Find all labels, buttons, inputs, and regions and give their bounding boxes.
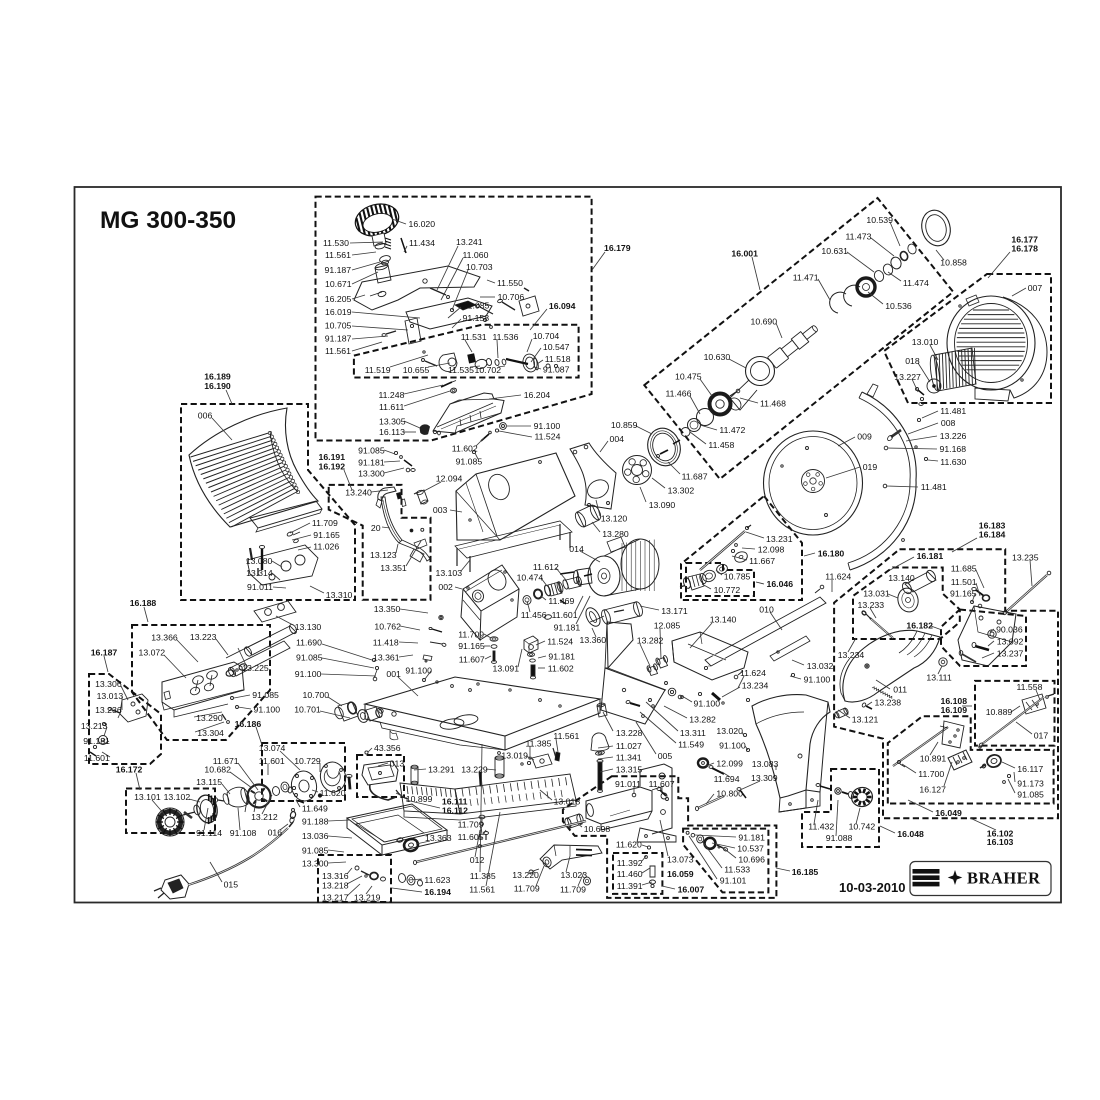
svg-text:13.282: 13.282: [689, 714, 716, 724]
svg-text:16.046: 16.046: [767, 579, 794, 589]
svg-text:10.537: 10.537: [737, 844, 764, 854]
svg-text:13.083: 13.083: [752, 759, 779, 769]
svg-text:13.080: 13.080: [246, 556, 273, 566]
svg-text:13.140: 13.140: [710, 615, 737, 625]
svg-text:11.601: 11.601: [84, 753, 110, 763]
svg-text:91.181: 91.181: [548, 651, 575, 661]
svg-text:13.315: 13.315: [616, 765, 643, 775]
svg-text:16.179: 16.179: [604, 243, 631, 253]
svg-text:11.385: 11.385: [526, 738, 552, 748]
svg-text:13.316: 13.316: [322, 871, 349, 881]
svg-text:11.530: 11.530: [323, 238, 349, 248]
svg-text:11.607: 11.607: [459, 654, 485, 664]
svg-text:13.111: 13.111: [926, 672, 951, 682]
svg-text:16.191: 16.191: [319, 452, 346, 462]
svg-text:16.112: 16.112: [442, 806, 468, 816]
svg-text:11.472: 11.472: [719, 425, 745, 435]
svg-text:11.524: 11.524: [547, 636, 573, 646]
svg-text:91.100: 91.100: [694, 699, 721, 709]
svg-text:13.314: 13.314: [246, 568, 273, 578]
svg-text:11.611: 11.611: [379, 402, 404, 412]
svg-text:11.392: 11.392: [617, 858, 643, 868]
svg-text:91.181: 91.181: [83, 736, 110, 746]
svg-text:13.311: 13.311: [680, 728, 706, 738]
svg-text:11.550: 11.550: [497, 278, 523, 288]
svg-text:11.561: 11.561: [469, 885, 495, 895]
svg-text:11.709: 11.709: [514, 884, 540, 894]
svg-text:11.469: 11.469: [548, 596, 574, 606]
svg-text:11.531: 11.531: [461, 332, 487, 342]
svg-text:91.173: 91.173: [1017, 778, 1044, 788]
svg-text:10.891: 10.891: [920, 754, 947, 764]
svg-text:13.237: 13.237: [997, 649, 1024, 659]
svg-text:16.186: 16.186: [235, 719, 262, 729]
svg-text:10.729: 10.729: [294, 756, 321, 766]
svg-text:16.194: 16.194: [424, 887, 451, 897]
svg-text:10.539: 10.539: [866, 215, 893, 225]
svg-text:13.013: 13.013: [97, 691, 124, 701]
svg-text:13.300: 13.300: [302, 859, 329, 869]
svg-text:10.800: 10.800: [716, 788, 743, 798]
svg-text:006: 006: [198, 411, 213, 421]
svg-text:16.182: 16.182: [906, 621, 933, 631]
svg-text:13.291: 13.291: [428, 765, 455, 775]
svg-text:91.088: 91.088: [826, 833, 853, 843]
svg-text:11.418: 11.418: [373, 638, 399, 648]
svg-text:11.471: 11.471: [793, 272, 819, 282]
svg-text:20: 20: [371, 523, 381, 533]
svg-text:003: 003: [433, 505, 448, 515]
svg-text:13.220: 13.220: [512, 870, 539, 880]
svg-text:13.290: 13.290: [196, 713, 223, 723]
svg-text:91.100: 91.100: [295, 669, 322, 679]
svg-text:91.165: 91.165: [458, 641, 485, 651]
svg-text:91.100: 91.100: [719, 741, 746, 751]
svg-text:16.180: 16.180: [818, 548, 845, 558]
svg-text:11.620: 11.620: [320, 788, 346, 798]
svg-text:11.607: 11.607: [649, 779, 675, 789]
svg-text:10.682: 10.682: [204, 765, 231, 775]
svg-text:13.350: 13.350: [374, 604, 401, 614]
svg-text:16.127: 16.127: [919, 784, 946, 794]
svg-text:11.602: 11.602: [452, 444, 478, 454]
svg-text:11.561: 11.561: [325, 250, 351, 260]
svg-text:007: 007: [1028, 283, 1043, 293]
svg-text:11.700: 11.700: [918, 769, 944, 779]
svg-text:16.172: 16.172: [116, 765, 143, 775]
svg-text:13.019: 13.019: [501, 751, 528, 761]
svg-text:018: 018: [905, 356, 920, 366]
svg-text:010: 010: [759, 605, 774, 615]
svg-text:10.899: 10.899: [406, 794, 433, 804]
svg-text:11.248: 11.248: [379, 390, 405, 400]
svg-text:10.536: 10.536: [885, 301, 912, 311]
svg-text:10.704: 10.704: [533, 331, 560, 341]
svg-text:017: 017: [1034, 730, 1049, 740]
svg-text:16.192: 16.192: [319, 462, 346, 472]
svg-text:10.655: 10.655: [403, 365, 430, 375]
svg-text:11.624: 11.624: [740, 668, 766, 678]
svg-text:13.010: 13.010: [912, 337, 939, 347]
svg-text:91.087: 91.087: [543, 365, 570, 375]
svg-text:10.859: 10.859: [611, 420, 638, 430]
svg-text:004: 004: [610, 434, 625, 444]
svg-text:11.630: 11.630: [940, 457, 966, 467]
svg-text:11.341: 11.341: [616, 753, 642, 763]
svg-text:13.227: 13.227: [894, 372, 921, 382]
svg-text:16.059: 16.059: [667, 869, 694, 879]
svg-text:13.241: 13.241: [456, 237, 483, 247]
svg-text:11.519: 11.519: [365, 365, 391, 375]
svg-text:11.549: 11.549: [678, 740, 704, 750]
svg-text:13.231: 13.231: [766, 534, 793, 544]
svg-text:91.168: 91.168: [940, 444, 967, 454]
svg-text:11.649: 11.649: [302, 804, 328, 814]
svg-text:10.631: 10.631: [821, 246, 848, 256]
svg-text:13.282: 13.282: [637, 636, 664, 646]
svg-text:13.036: 13.036: [302, 831, 329, 841]
svg-text:11.558: 11.558: [1017, 682, 1043, 692]
svg-text:11.468: 11.468: [760, 399, 786, 409]
svg-text:009: 009: [857, 432, 872, 442]
svg-text:10-03-2010: 10-03-2010: [839, 880, 906, 895]
svg-text:13.223: 13.223: [190, 632, 217, 642]
svg-text:008: 008: [941, 418, 956, 428]
svg-text:11.027: 11.027: [616, 741, 642, 751]
svg-text:16.109: 16.109: [941, 705, 968, 715]
svg-text:11.601: 11.601: [552, 610, 578, 620]
svg-text:16.019: 16.019: [325, 307, 352, 317]
svg-text:10.705: 10.705: [325, 321, 352, 331]
svg-text:43.356: 43.356: [374, 743, 401, 753]
svg-text:91.085: 91.085: [1017, 789, 1044, 799]
svg-text:13.305: 13.305: [379, 416, 406, 426]
svg-text:91.181: 91.181: [358, 458, 385, 468]
svg-text:10.858: 10.858: [940, 257, 967, 267]
svg-text:91.085: 91.085: [296, 653, 323, 663]
svg-text:11.460: 11.460: [617, 869, 643, 879]
svg-text:16.189: 16.189: [204, 372, 231, 382]
svg-text:13.115: 13.115: [196, 777, 222, 787]
svg-text:13.140: 13.140: [888, 573, 915, 583]
svg-text:10.475: 10.475: [675, 372, 702, 382]
svg-text:13.234: 13.234: [742, 681, 769, 691]
svg-text:91.100: 91.100: [534, 421, 561, 431]
svg-text:16.001: 16.001: [731, 249, 758, 259]
svg-text:10.701: 10.701: [294, 705, 321, 715]
svg-text:11.709: 11.709: [560, 884, 586, 894]
svg-text:13.306: 13.306: [95, 679, 122, 689]
svg-text:13.360: 13.360: [580, 635, 607, 645]
svg-text:13.233: 13.233: [858, 600, 885, 610]
svg-text:11.524: 11.524: [535, 432, 561, 442]
svg-text:91.100: 91.100: [405, 665, 432, 675]
svg-text:91.100: 91.100: [804, 675, 831, 685]
svg-text:91.181: 91.181: [554, 622, 581, 632]
svg-text:11.481: 11.481: [940, 406, 966, 416]
svg-text:13.020: 13.020: [716, 726, 743, 736]
svg-text:005: 005: [658, 751, 673, 761]
svg-text:91.100: 91.100: [254, 705, 281, 715]
svg-text:11.624: 11.624: [825, 572, 851, 582]
svg-text:014: 014: [569, 544, 584, 554]
svg-text:91.085: 91.085: [302, 846, 329, 856]
svg-text:91.108: 91.108: [230, 828, 257, 838]
svg-text:13.217: 13.217: [322, 892, 349, 902]
svg-text:16.187: 16.187: [91, 648, 118, 658]
svg-text:MG 300-350: MG 300-350: [100, 207, 236, 234]
svg-text:16.117: 16.117: [1017, 764, 1043, 774]
svg-text:13.023: 13.023: [561, 870, 588, 880]
svg-text:13.228: 13.228: [616, 728, 643, 738]
svg-text:13.103: 13.103: [436, 568, 463, 578]
svg-text:16.181: 16.181: [917, 551, 944, 561]
svg-text:10.785: 10.785: [724, 572, 751, 582]
svg-text:BRAHER: BRAHER: [967, 869, 1041, 888]
svg-text:16.190: 16.190: [204, 381, 231, 391]
svg-text:002: 002: [438, 582, 453, 592]
svg-text:11.690: 11.690: [296, 638, 322, 648]
svg-text:13.090: 13.090: [649, 500, 676, 510]
svg-text:016: 016: [268, 827, 283, 837]
svg-text:91.187: 91.187: [325, 334, 352, 344]
svg-text:11.466: 11.466: [666, 388, 692, 398]
svg-text:10.702: 10.702: [475, 365, 502, 375]
svg-text:11.709: 11.709: [458, 820, 484, 830]
svg-text:11.501: 11.501: [951, 577, 977, 587]
svg-text:13.238: 13.238: [875, 697, 902, 707]
svg-text:10.772: 10.772: [714, 585, 741, 595]
svg-text:11.473: 11.473: [846, 232, 872, 242]
svg-text:16.204: 16.204: [524, 390, 551, 400]
svg-text:16.049: 16.049: [935, 808, 962, 818]
svg-text:11.612: 11.612: [533, 562, 559, 572]
svg-text:12.098: 12.098: [758, 544, 785, 554]
svg-text:12.099: 12.099: [716, 759, 743, 769]
svg-text:13.074: 13.074: [259, 743, 286, 753]
svg-text:11.685: 11.685: [951, 564, 977, 574]
svg-text:11.385: 11.385: [470, 871, 496, 881]
svg-text:13.280: 13.280: [602, 529, 629, 539]
svg-text:013: 013: [390, 758, 405, 768]
svg-text:91.085: 91.085: [463, 301, 490, 311]
svg-text:012: 012: [470, 855, 485, 865]
svg-text:13.123: 13.123: [370, 550, 397, 560]
svg-text:11.533: 11.533: [724, 864, 750, 874]
svg-text:13.235: 13.235: [1012, 552, 1039, 562]
svg-text:13.361: 13.361: [373, 652, 400, 662]
svg-text:11.605: 11.605: [458, 832, 484, 842]
svg-text:91.165: 91.165: [313, 530, 340, 540]
svg-text:13.300: 13.300: [358, 468, 385, 478]
svg-text:13.018: 13.018: [554, 796, 581, 806]
svg-text:13.091: 13.091: [493, 664, 520, 674]
svg-text:11.535: 11.535: [448, 365, 474, 375]
svg-text:13.219: 13.219: [354, 892, 381, 902]
svg-text:11.623: 11.623: [424, 875, 450, 885]
svg-text:11.561: 11.561: [325, 346, 351, 356]
svg-text:16.007: 16.007: [678, 884, 705, 894]
svg-text:11.481: 11.481: [921, 482, 947, 492]
svg-text:91.165: 91.165: [950, 589, 977, 599]
svg-text:11.391: 11.391: [617, 881, 643, 891]
svg-text:91.187: 91.187: [325, 265, 352, 275]
svg-text:13.073: 13.073: [667, 855, 694, 865]
svg-text:16.020: 16.020: [409, 219, 436, 229]
svg-text:16.205: 16.205: [325, 294, 352, 304]
svg-text:13.101: 13.101: [134, 792, 161, 802]
svg-text:10.703: 10.703: [466, 262, 493, 272]
svg-text:13.226: 13.226: [940, 431, 967, 441]
svg-text:13.240: 13.240: [345, 487, 372, 497]
svg-text:11.709: 11.709: [312, 518, 338, 528]
svg-text:13.309: 13.309: [751, 773, 778, 783]
svg-text:11.601: 11.601: [259, 756, 285, 766]
svg-text:13.031: 13.031: [863, 589, 890, 599]
svg-text:11.694: 11.694: [714, 774, 740, 784]
svg-text:16.184: 16.184: [979, 529, 1006, 539]
svg-text:13.366: 13.366: [151, 632, 178, 642]
svg-text:13.120: 13.120: [601, 514, 628, 524]
svg-text:13.302: 13.302: [668, 485, 695, 495]
svg-text:16.185: 16.185: [792, 867, 819, 877]
svg-text:10.690: 10.690: [751, 317, 778, 327]
svg-text:10.630: 10.630: [704, 352, 731, 362]
svg-text:11.620: 11.620: [616, 840, 642, 850]
svg-text:16.178: 16.178: [1011, 244, 1038, 254]
svg-text:11.602: 11.602: [548, 664, 574, 674]
svg-text:91.114: 91.114: [196, 828, 222, 838]
svg-text:11.687: 11.687: [682, 471, 708, 481]
svg-text:10.671: 10.671: [325, 279, 352, 289]
svg-text:11.432: 11.432: [808, 822, 834, 832]
svg-text:16.113: 16.113: [379, 427, 405, 437]
svg-text:91.181: 91.181: [738, 833, 765, 843]
svg-text:011: 011: [893, 685, 907, 695]
svg-text:11.709: 11.709: [458, 629, 484, 639]
svg-text:13.304: 13.304: [197, 728, 224, 738]
svg-text:13.130: 13.130: [295, 622, 322, 632]
svg-text:13.092: 13.092: [997, 637, 1024, 647]
svg-text:91.085: 91.085: [358, 446, 385, 456]
svg-text:11.536: 11.536: [493, 332, 519, 342]
svg-text:11.456: 11.456: [521, 610, 547, 620]
svg-text:11.434: 11.434: [409, 238, 435, 248]
svg-text:13.310: 13.310: [326, 590, 353, 600]
svg-text:13.234: 13.234: [838, 650, 865, 660]
svg-text:16.094: 16.094: [549, 301, 576, 311]
svg-text:91.101: 91.101: [720, 875, 747, 885]
svg-text:13.121: 13.121: [852, 714, 879, 724]
svg-text:13.236: 13.236: [95, 705, 122, 715]
svg-text:16.048: 16.048: [897, 829, 924, 839]
svg-text:91.085: 91.085: [456, 457, 483, 467]
svg-text:11.474: 11.474: [903, 278, 929, 288]
svg-text:91.011: 91.011: [247, 582, 273, 592]
svg-text:10.696: 10.696: [738, 855, 765, 865]
svg-text:10.547: 10.547: [543, 342, 570, 352]
svg-text:13.225: 13.225: [242, 663, 269, 673]
svg-text:10.889: 10.889: [986, 707, 1013, 717]
svg-text:13.102: 13.102: [164, 792, 191, 802]
svg-text:13.171: 13.171: [661, 606, 688, 616]
svg-text:12.085: 12.085: [654, 621, 681, 631]
svg-text:13.213: 13.213: [81, 721, 108, 731]
svg-text:001: 001: [386, 669, 401, 679]
svg-text:10.762: 10.762: [374, 621, 401, 631]
svg-text:13.229: 13.229: [461, 765, 488, 775]
svg-text:10.706: 10.706: [498, 292, 525, 302]
svg-text:10.700: 10.700: [303, 690, 330, 700]
svg-text:11.561: 11.561: [553, 731, 579, 741]
svg-text:11.518: 11.518: [545, 354, 571, 364]
svg-text:11.667: 11.667: [749, 556, 775, 566]
svg-text:91.085: 91.085: [252, 690, 279, 700]
svg-text:10.474: 10.474: [517, 573, 544, 583]
svg-text:11.026: 11.026: [313, 542, 339, 552]
svg-text:12.094: 12.094: [436, 474, 463, 484]
svg-text:13.218: 13.218: [322, 881, 349, 891]
svg-text:91.188: 91.188: [302, 817, 329, 827]
svg-text:10.742: 10.742: [849, 822, 876, 832]
svg-text:13.072: 13.072: [139, 648, 166, 658]
svg-text:13.363: 13.363: [425, 833, 452, 843]
svg-text:13.351: 13.351: [380, 563, 407, 573]
svg-text:13.032: 13.032: [807, 661, 834, 671]
svg-text:90.036: 90.036: [996, 624, 1023, 634]
svg-text:11.060: 11.060: [463, 250, 489, 260]
svg-text:019: 019: [863, 462, 878, 472]
svg-text:16.188: 16.188: [130, 598, 157, 608]
svg-text:11.458: 11.458: [708, 440, 734, 450]
svg-text:13.212: 13.212: [251, 812, 278, 822]
svg-text:10.698: 10.698: [584, 824, 611, 834]
svg-text:91.011: 91.011: [615, 779, 641, 789]
svg-text:91.158: 91.158: [463, 313, 490, 323]
svg-text:16.103: 16.103: [987, 837, 1014, 847]
svg-text:015: 015: [224, 880, 239, 890]
